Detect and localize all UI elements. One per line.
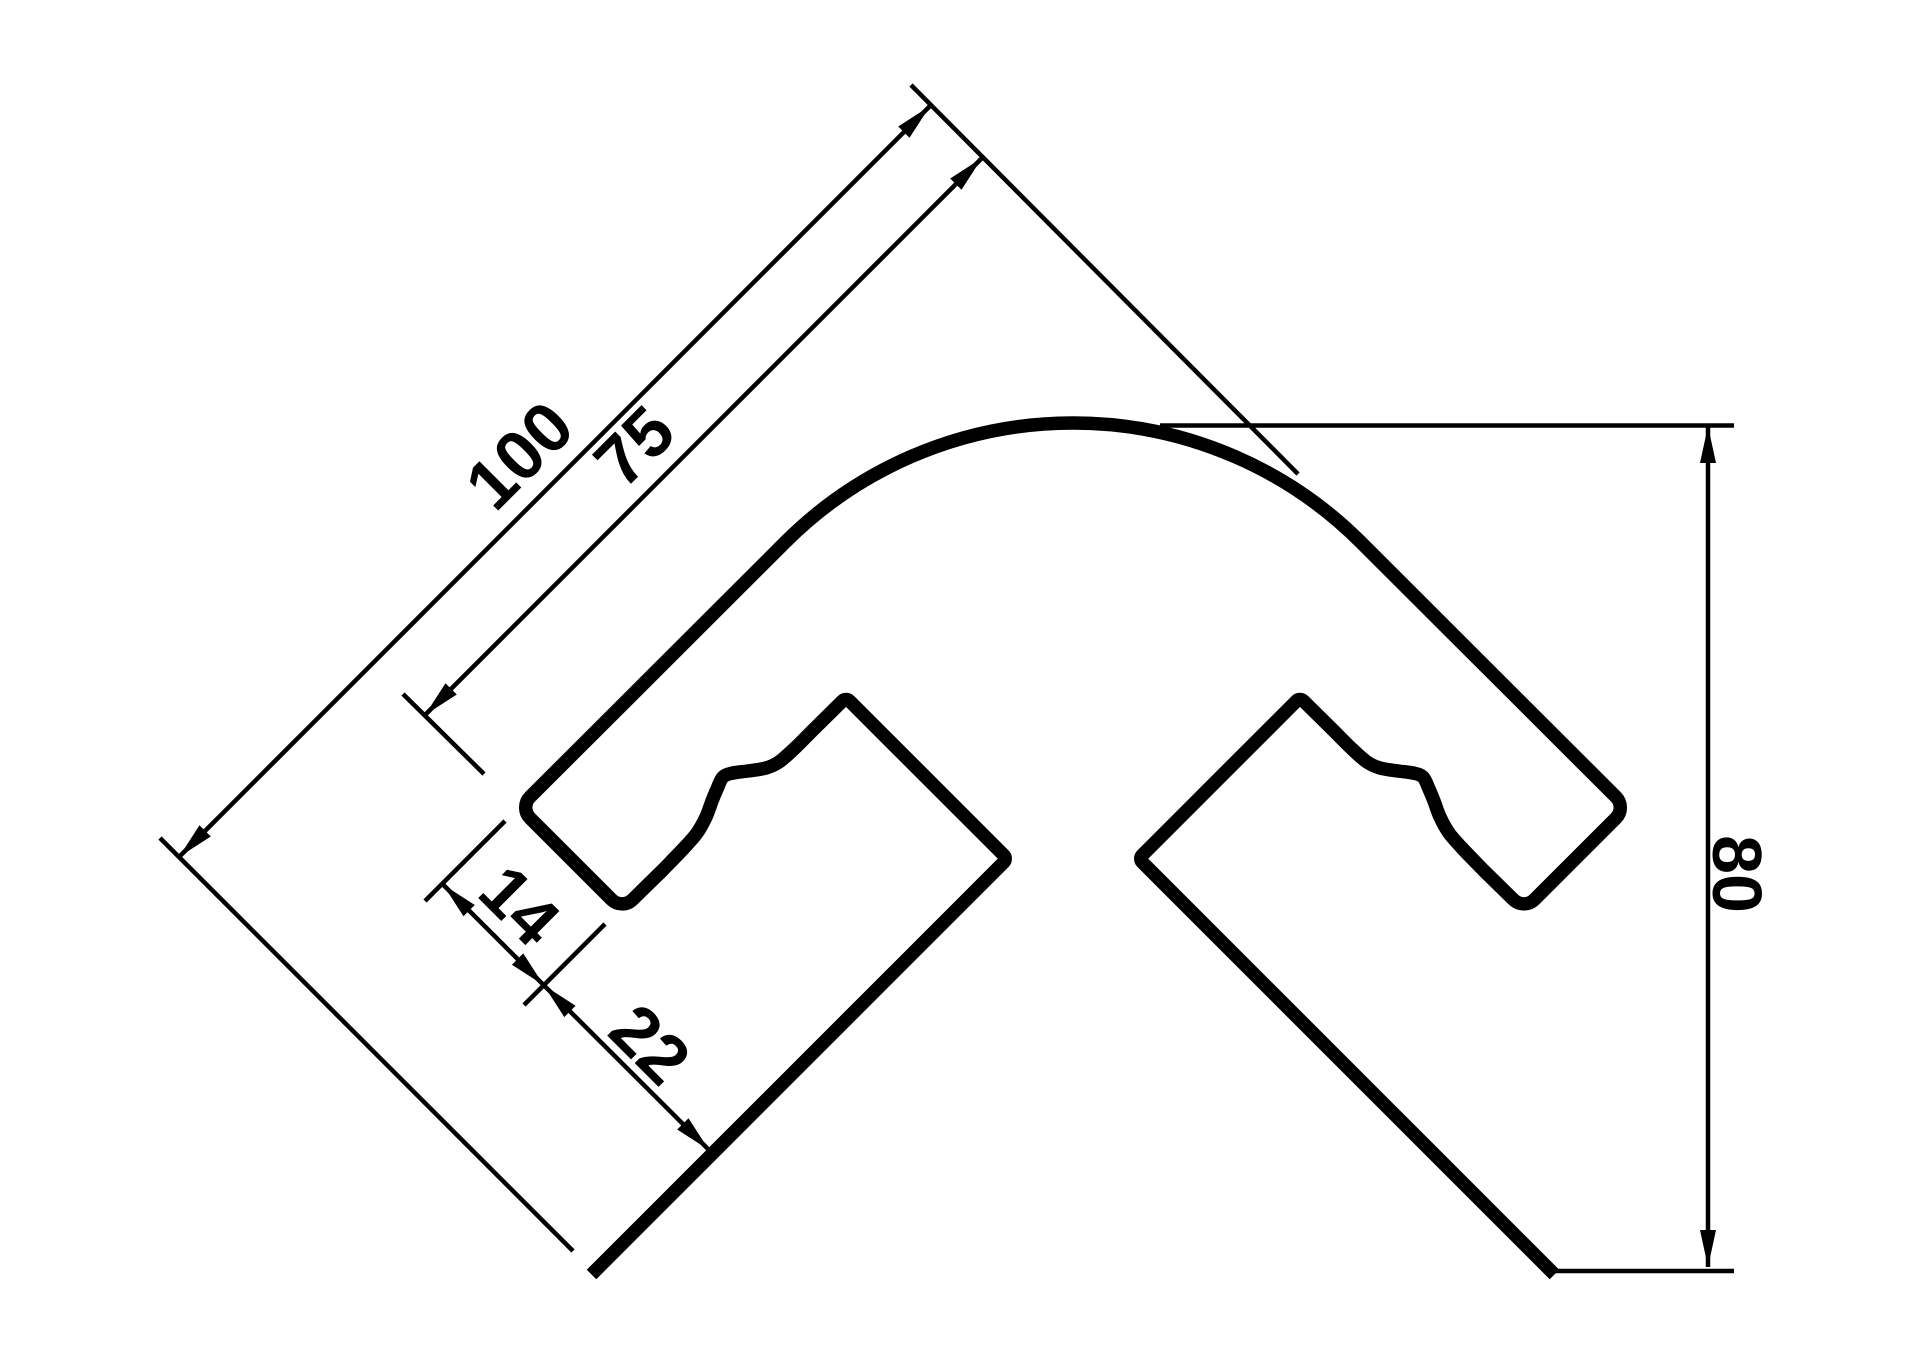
svg-text:80: 80 <box>1698 835 1776 913</box>
